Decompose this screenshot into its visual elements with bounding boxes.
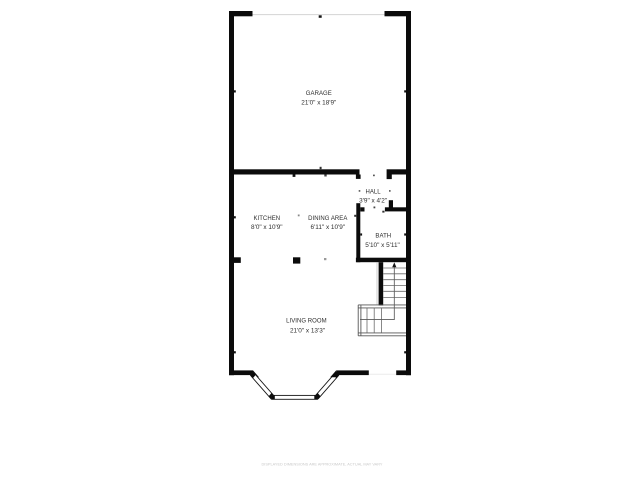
svg-text:HALL: HALL <box>365 190 381 196</box>
svg-text:21'0" x 13'3": 21'0" x 13'3" <box>290 327 325 334</box>
svg-text:3'9" x 4'2": 3'9" x 4'2" <box>359 198 387 205</box>
svg-text:DINING AREA: DINING AREA <box>308 216 347 222</box>
svg-text:BATH: BATH <box>375 234 391 240</box>
svg-text:6'11" x 10'9": 6'11" x 10'9" <box>311 224 346 231</box>
svg-text:DISPLAYED DIMENSIONS ARE APPRO: DISPLAYED DIMENSIONS ARE APPROXIMATE, AC… <box>262 463 383 467</box>
svg-text:GARAGE: GARAGE <box>306 91 332 97</box>
svg-text:KITCHEN: KITCHEN <box>253 216 280 222</box>
svg-text:LIVING ROOM: LIVING ROOM <box>286 318 327 324</box>
svg-text:5'10" x 5'11": 5'10" x 5'11" <box>365 242 400 249</box>
svg-text:21'0" x 18'9": 21'0" x 18'9" <box>301 99 336 106</box>
svg-text:8'0" x 10'9": 8'0" x 10'9" <box>251 224 283 231</box>
